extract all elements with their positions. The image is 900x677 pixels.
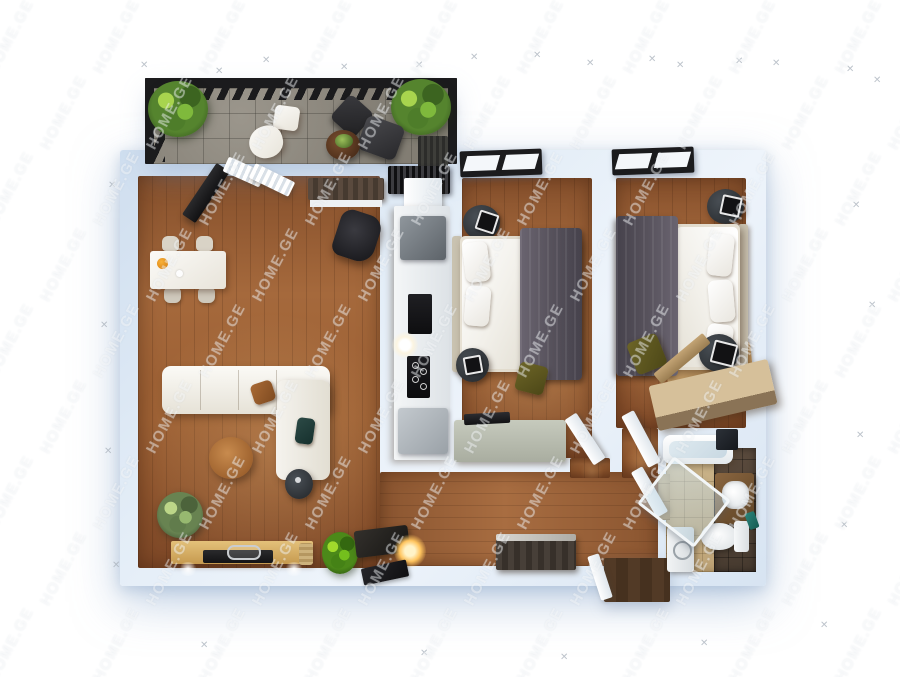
sparkle-icon: ✕	[215, 66, 223, 77]
dining-table	[150, 251, 226, 289]
floor-plant-olive	[157, 492, 203, 538]
watermark-text: HOME.GE	[885, 225, 900, 305]
cooktop-sink	[408, 294, 432, 334]
watermark-text: HOME.GE	[832, 453, 885, 533]
sofa-seam	[238, 370, 239, 410]
dining-chair	[198, 288, 215, 303]
burner	[420, 368, 427, 375]
window-pane	[463, 155, 500, 171]
sparkle-icon: ✕	[735, 56, 743, 67]
sparkle-icon: ✕	[340, 62, 348, 73]
sparkle-icon: ✕	[846, 64, 854, 75]
bath-mirror	[716, 429, 738, 450]
sparkle-icon: ✕	[840, 520, 848, 531]
table-plate	[176, 270, 183, 277]
watermark-text: HOME.GE	[461, 73, 514, 153]
watermark-text: HOME.GE	[779, 73, 832, 153]
side-table	[285, 469, 313, 499]
pergola-roof-slats	[193, 84, 401, 100]
watermark-text: HOME.GE	[779, 377, 832, 457]
sparkle-icon: ✕	[262, 55, 270, 66]
watermark-text: HOME.GE	[779, 225, 832, 305]
floorplan-render: ✕✕✕✕✕✕✕✕✕✕✕✕✕✕✕✕✕✕✕✕✕✕✕✕✕✕✕ HOME.GEHOME.…	[0, 0, 900, 677]
watermark-text: HOME.GE	[779, 529, 832, 609]
burner	[420, 383, 427, 390]
watermark-text: HOME.GE	[37, 225, 90, 305]
watermark-text: HOME.GE	[0, 301, 37, 381]
watermark-text: HOME.GE	[726, 605, 779, 677]
watermark-text: HOME.GE	[302, 605, 355, 677]
window-pane	[502, 154, 539, 170]
watermark-text: HOME.GE	[90, 0, 143, 76]
table-lamp	[463, 355, 484, 376]
sparkle-icon: ✕	[852, 200, 860, 211]
balcony	[145, 78, 457, 164]
watermark-text: HOME.GE	[37, 73, 90, 153]
burner	[412, 362, 419, 369]
sparkle-icon: ✕	[856, 430, 864, 441]
dresser-chest	[454, 420, 566, 462]
bed-pillow	[706, 233, 735, 277]
sparkle-icon: ✕	[700, 638, 708, 649]
watermark-text: HOME.GE	[408, 0, 461, 76]
sparkle-icon: ✕	[533, 50, 541, 61]
sofa-seam	[276, 370, 277, 410]
watermark-text: HOME.GE	[620, 605, 673, 677]
pergola-frame-right	[448, 78, 457, 164]
watermark-text: HOME.GE	[832, 149, 885, 229]
bed-pillow	[462, 241, 492, 284]
dining-chair	[196, 236, 213, 251]
sparkle-icon: ✕	[676, 60, 684, 71]
watermark-text: HOME.GE	[885, 73, 900, 153]
sofa-seam	[200, 370, 201, 410]
counter-candle-glow	[392, 332, 418, 358]
sparkle-icon: ✕	[420, 648, 428, 659]
tv-stand-pill	[227, 545, 261, 560]
hall-console	[496, 536, 576, 570]
sparkle-icon: ✕	[648, 54, 656, 65]
watermark-text: HOME.GE	[90, 605, 143, 677]
watermark-text: HOME.GE	[0, 149, 37, 229]
toilet-tank	[734, 521, 749, 552]
sparkle-icon: ✕	[560, 652, 568, 663]
watermark-text: HOME.GE	[673, 73, 726, 153]
sideboard-base	[310, 200, 382, 207]
balcony-plant-left	[148, 81, 208, 137]
sparkle-icon: ✕	[820, 620, 828, 631]
sparkle-icon: ✕	[772, 58, 780, 69]
dining-chair	[162, 236, 179, 251]
sparkle-icon: ✕	[868, 300, 876, 311]
watermark-text: HOME.GE	[514, 605, 567, 677]
watermark-text: HOME.GE	[832, 605, 885, 677]
table-lamp	[719, 194, 743, 218]
watermark-text: HOME.GE	[885, 377, 900, 457]
bed-blanket-gray	[520, 228, 582, 380]
stove-burners	[407, 356, 430, 398]
watermark-text: HOME.GE	[726, 0, 779, 76]
watermark-text: HOME.GE	[514, 0, 567, 76]
hall-console-top	[496, 534, 576, 541]
entry-mat	[604, 558, 670, 602]
watermark-text: HOME.GE	[37, 529, 90, 609]
sparkle-icon: ✕	[586, 58, 594, 69]
watermark-text: HOME.GE	[37, 377, 90, 457]
watermark-text: HOME.GE	[196, 605, 249, 677]
sparkle-icon: ✕	[470, 52, 478, 63]
round-pouf	[209, 437, 253, 479]
watermark-text: HOME.GE	[0, 0, 37, 76]
watermark-text: HOME.GE	[567, 73, 620, 153]
sparkle-icon: ✕	[104, 446, 112, 457]
bedroom-2-window	[612, 147, 695, 176]
window-pane	[615, 153, 652, 169]
sparkle-icon: ✕	[200, 640, 208, 651]
sofa-throw-pillow-teal	[294, 417, 315, 445]
sideboard	[308, 178, 384, 200]
sparkle-icon: ✕	[873, 75, 881, 86]
watermark-text: HOME.GE	[408, 605, 461, 677]
watermark-text: HOME.GE	[832, 0, 885, 76]
bedroom-1-window	[460, 149, 543, 178]
sparkle-icon: ✕	[140, 60, 148, 71]
window-pane	[654, 152, 691, 168]
side-table-decor	[295, 477, 301, 483]
bed-pillow	[463, 285, 491, 327]
basket	[299, 543, 313, 565]
watermark-text: HOME.GE	[832, 301, 885, 381]
burner	[412, 376, 419, 383]
sparkle-icon: ✕	[108, 180, 116, 191]
sparkle-icon: ✕	[415, 60, 423, 71]
watermark-text: HOME.GE	[196, 0, 249, 76]
sparkle-icon: ✕	[100, 320, 108, 331]
fruit-bowl	[157, 258, 168, 269]
watermark-text: HOME.GE	[620, 0, 673, 76]
bed-pillow	[707, 279, 736, 323]
dining-chair	[164, 288, 181, 303]
watermark-text: HOME.GE	[302, 0, 355, 76]
fridge-top	[400, 216, 446, 260]
watermark-text: HOME.GE	[0, 453, 37, 533]
green-plant	[322, 532, 358, 574]
wall-sconce-glow	[178, 562, 198, 576]
coffee-table-plant	[335, 134, 353, 148]
watermark-text: HOME.GE	[885, 529, 900, 609]
kitchen-lower-cabinet	[398, 408, 448, 454]
watermark-text: HOME.GE	[0, 605, 37, 677]
